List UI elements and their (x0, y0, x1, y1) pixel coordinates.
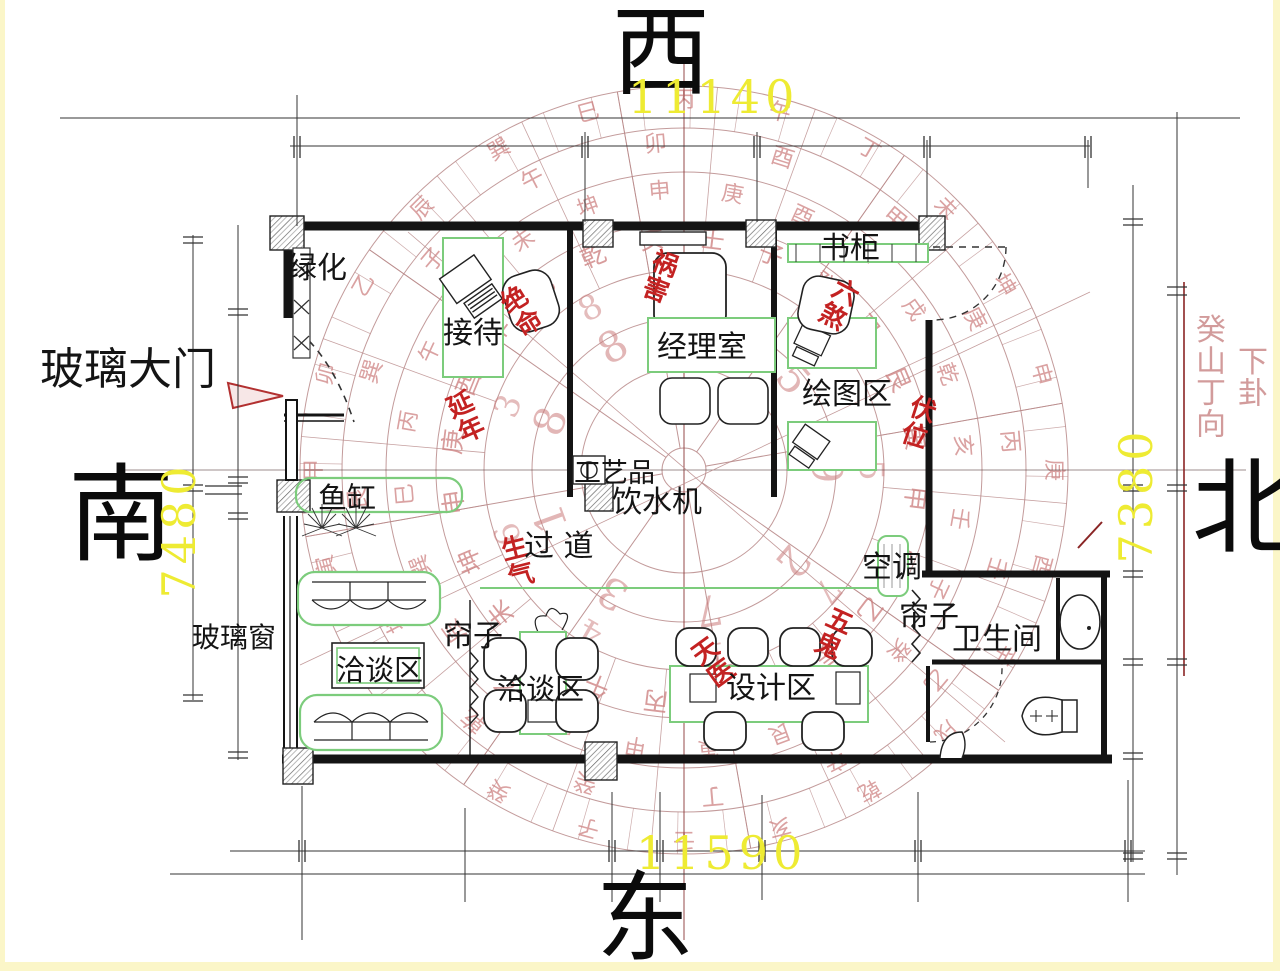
cad-floorplan-screenshot: 318865927829571463壬子癸丑艮寅甲卯乙辰巽巳丙午丁未坤申庚酉辛戌… (0, 0, 1280, 971)
annotation-xia-gua: 下卦 (1238, 345, 1268, 412)
label-bathroom: 卫生间 (952, 622, 1042, 657)
dim-bottom: 11590 (636, 826, 807, 880)
compass-char: 亥 (949, 434, 976, 458)
compass-char: 庚 (720, 181, 746, 209)
sofa-bottom (300, 695, 442, 750)
compass-char: 丙 (641, 685, 669, 717)
compass-char: 申 (648, 178, 672, 205)
manager-side-table (640, 232, 706, 245)
label-corridor: 过 道 (524, 529, 594, 564)
sofa-top (298, 572, 440, 625)
label-glass-door: 玻璃大门 (40, 344, 216, 395)
toilet (1022, 697, 1077, 735)
label-curtain-right: 帘子 (899, 600, 959, 635)
label-fish-tank: 鱼缸 (318, 481, 376, 515)
label-meeting-a: 洽谈区 (336, 653, 423, 687)
left-edge-strip (0, 0, 5, 971)
guest-chair-2 (718, 378, 768, 424)
label-water-dispenser: 饮水机 (612, 485, 702, 520)
direction-north: 北 (1192, 447, 1280, 569)
label-ac: 空调 (862, 550, 922, 585)
label-design-area: 设计区 (726, 671, 816, 706)
dim-top: 11140 (628, 70, 799, 124)
annotation-mountain-facing: 癸山丁向 (1196, 313, 1226, 443)
sink (1060, 595, 1100, 649)
label-glass-window: 玻璃窗 (192, 621, 276, 654)
label-drawing-area: 绘图区 (802, 377, 892, 412)
compass-char: 壬 (945, 506, 973, 532)
guest-chair-1 (660, 378, 710, 424)
floorplan-canvas: 318865927829571463壬子癸丑艮寅甲卯乙辰巽巳丙午丁未坤申庚酉辛戌… (0, 0, 1280, 971)
dim-right: 7380 (1109, 426, 1163, 563)
label-meeting-b: 洽谈区 (497, 672, 584, 706)
compass-char: 巳 (392, 482, 419, 506)
label-manager-office: 经理室 (657, 330, 747, 365)
compass-char: 丁 (700, 782, 725, 810)
label-reception: 接待 (443, 316, 503, 351)
dim-left: 7480 (152, 461, 206, 598)
entrance-door-leaf (286, 400, 297, 480)
label-bookcase: 书柜 (820, 231, 880, 266)
compass-char: 丙 (395, 408, 423, 434)
compass-char: 丙 (996, 429, 1024, 454)
label-curtain-mid: 帘子 (443, 619, 503, 654)
label-greenery: 绿化 (287, 251, 347, 286)
compass-char: 卯 (643, 130, 668, 158)
